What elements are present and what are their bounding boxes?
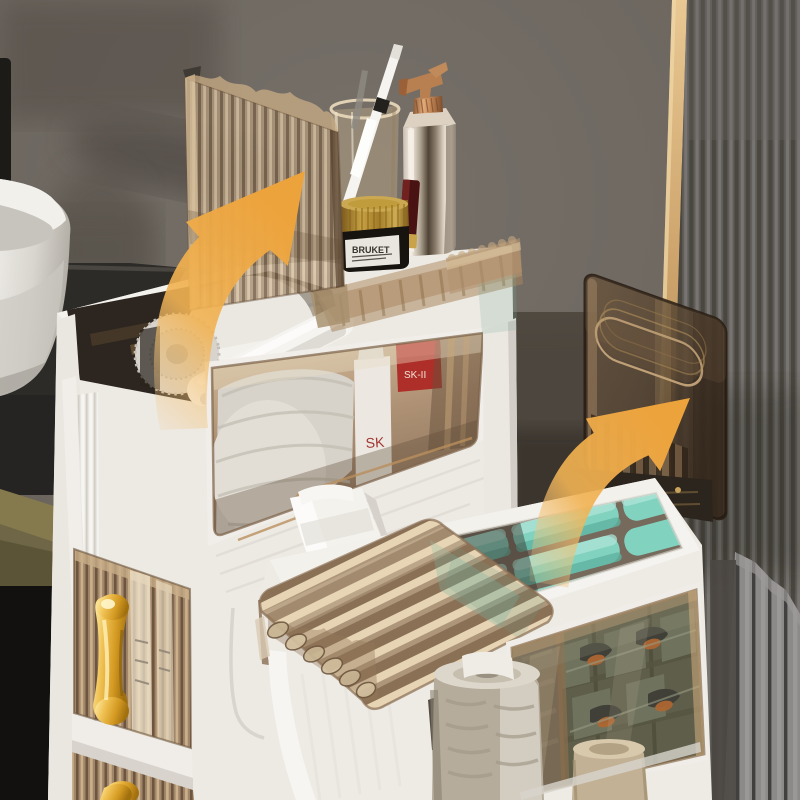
svg-text:SK-II: SK-II [404,370,426,381]
svg-text:BRUKET: BRUKET [352,245,390,255]
svg-text:SK: SK [365,434,385,451]
